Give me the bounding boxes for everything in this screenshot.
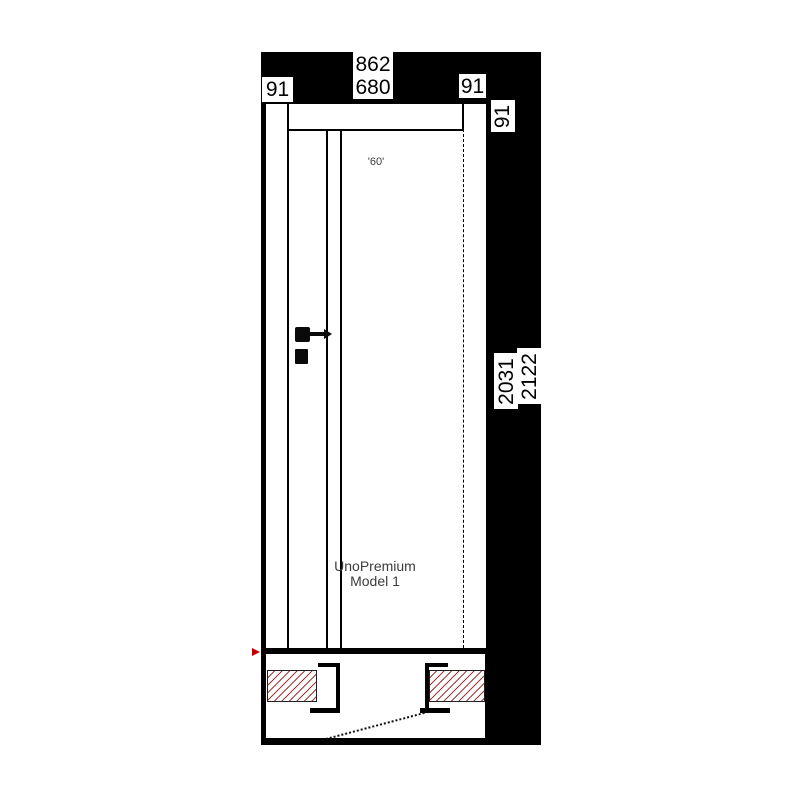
product-model: Model 1 xyxy=(304,574,446,589)
frame-left-line xyxy=(287,104,289,648)
door-handle-lever-tip xyxy=(324,329,332,339)
dimension-frame-outer-height: 2122 xyxy=(517,348,541,404)
frame-profile-left-top-flange xyxy=(318,663,340,667)
product-label: UnoPremium Model 1 xyxy=(304,559,446,589)
dimension-frame-top-value: 91 xyxy=(491,104,514,127)
frame-profile-right-top-flange xyxy=(425,663,448,667)
door-lock-rosette xyxy=(295,349,308,364)
drawing-canvas: '60' UnoPremium Model 1 862 680 91 91 91… xyxy=(0,0,800,800)
glass-type-label: '60' xyxy=(354,156,398,168)
dimension-leaf-width: 680 xyxy=(355,76,390,99)
dimension-frame-outer-width: 862 xyxy=(355,53,390,76)
frame-right-line xyxy=(462,104,464,131)
dimension-frame-outer-height-value: 2122 xyxy=(518,353,541,400)
frame-profile-right xyxy=(425,663,429,713)
hinge-side-dashed-line xyxy=(463,129,464,648)
leaf-top-line xyxy=(287,129,464,131)
door-plan-view xyxy=(266,654,485,738)
dimension-frame-top: 91 xyxy=(491,100,515,132)
wall-section-right xyxy=(429,670,485,702)
door-swing-dotted-line xyxy=(322,712,425,741)
dimension-leaf-height: 2031 xyxy=(494,353,518,409)
dimension-leaf-height-value: 2031 xyxy=(495,358,518,405)
door-elevation-view: '60' UnoPremium Model 1 xyxy=(266,104,486,648)
section-cut-marker xyxy=(252,648,260,656)
product-name: UnoPremium xyxy=(304,559,446,574)
door-handle-lever xyxy=(309,332,325,336)
wall-section-left xyxy=(267,670,317,702)
door-handle-rosette xyxy=(295,327,310,342)
dimension-width-box: 862 680 xyxy=(353,52,393,99)
dimension-frame-right: 91 xyxy=(459,74,486,98)
frame-profile-left xyxy=(336,663,340,713)
frame-profile-left-bottom-flange xyxy=(310,708,340,713)
dimension-frame-left: 91 xyxy=(262,77,293,102)
